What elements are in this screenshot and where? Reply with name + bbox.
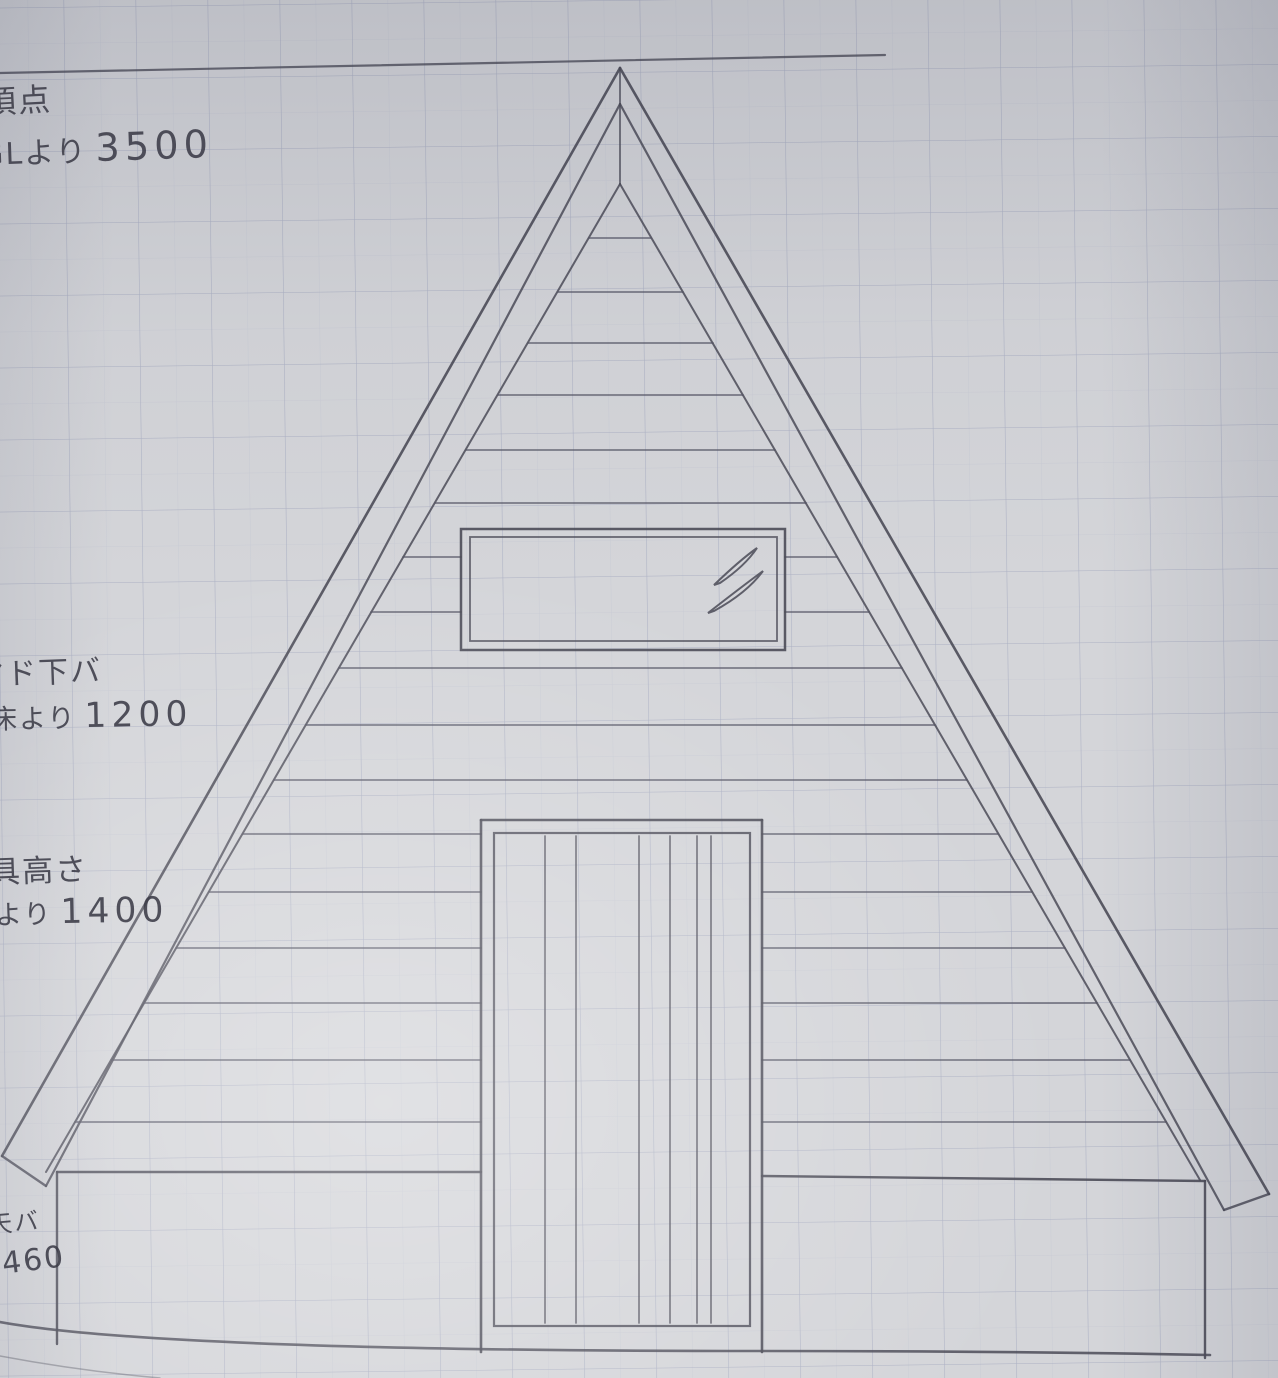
aframe-elevation-drawing: [0, 0, 1278, 1378]
fixture-height-label-text: 建具高さ: [0, 852, 89, 893]
annotation-fixture-height-label: 建具高さ: [0, 844, 89, 894]
apex-label-text: 頂点: [0, 80, 53, 122]
apex-dim-value: 3500: [95, 122, 214, 171]
fixture-height-dim-prefix: 床より: [0, 899, 53, 932]
annotation-deck-top-label: 天バ: [0, 1201, 41, 1240]
fixture-height-dim-value: 1400: [60, 890, 169, 932]
annotation-apex-label: 頂点: [0, 74, 53, 123]
deck-top-label-text: 天バ: [0, 1207, 41, 1239]
sketch-photo: 頂点 GLより3500 マド下バ 床より1200 建具高さ 床より1400 天バ…: [0, 0, 1278, 1378]
annotation-window-sill-dimension: 床より1200: [0, 694, 193, 738]
window-sill-dim-prefix: 床より: [0, 703, 77, 736]
window-sill-dim-value: 1200: [84, 694, 193, 736]
apex-dim-prefix: GLより: [0, 134, 88, 173]
window-sill-label-text: マド下バ: [0, 654, 103, 693]
annotation-apex-dimension: GLより3500: [0, 122, 214, 175]
annotation-fixture-height-dimension: 床より1400: [0, 890, 169, 934]
annotation-window-sill-label: マド下バ: [0, 646, 103, 694]
